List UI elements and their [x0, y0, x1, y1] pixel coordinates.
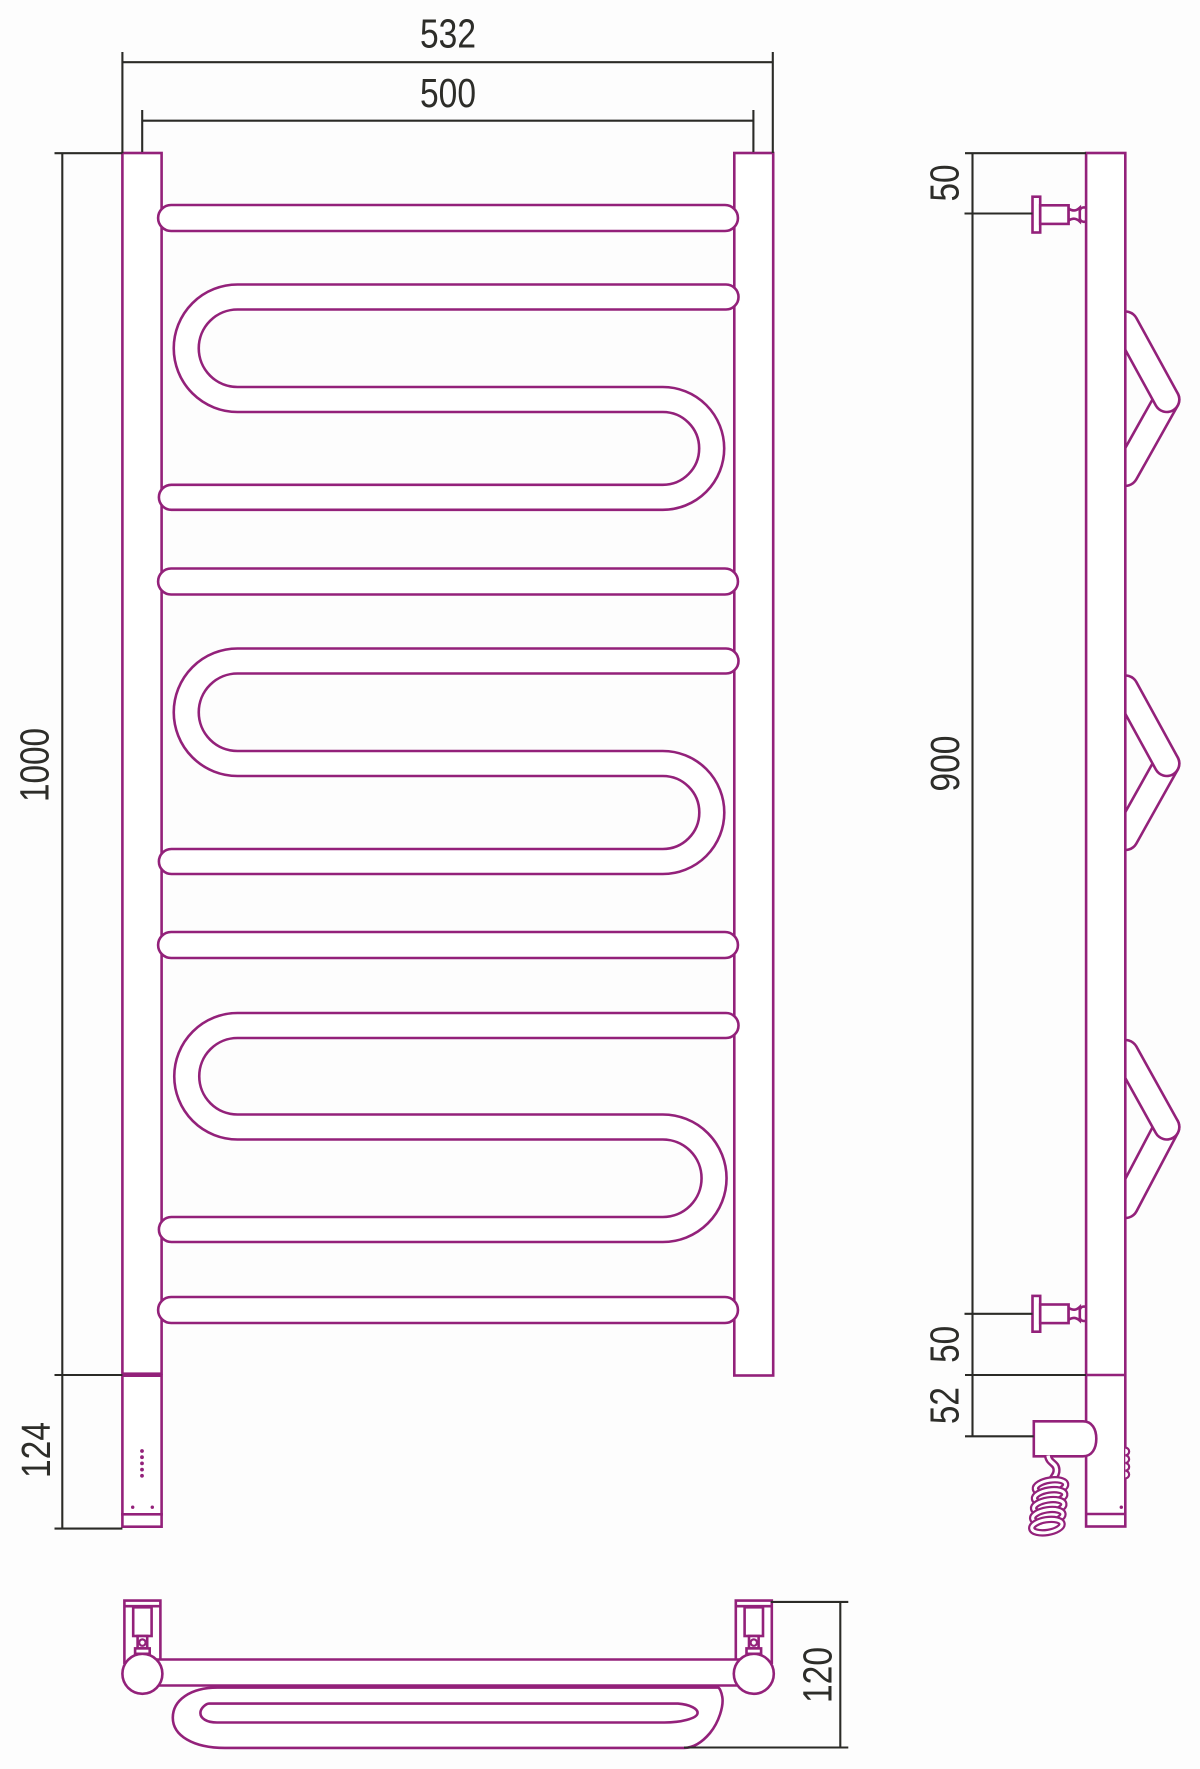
svg-text:120: 120	[795, 1647, 841, 1703]
svg-text:50: 50	[922, 1326, 968, 1363]
svg-text:900: 900	[922, 736, 968, 792]
svg-text:50: 50	[922, 165, 968, 202]
svg-text:52: 52	[922, 1387, 968, 1424]
svg-text:532: 532	[420, 11, 476, 57]
svg-text:500: 500	[420, 70, 476, 116]
svg-text:124: 124	[13, 1422, 59, 1478]
svg-text:1000: 1000	[11, 728, 57, 802]
